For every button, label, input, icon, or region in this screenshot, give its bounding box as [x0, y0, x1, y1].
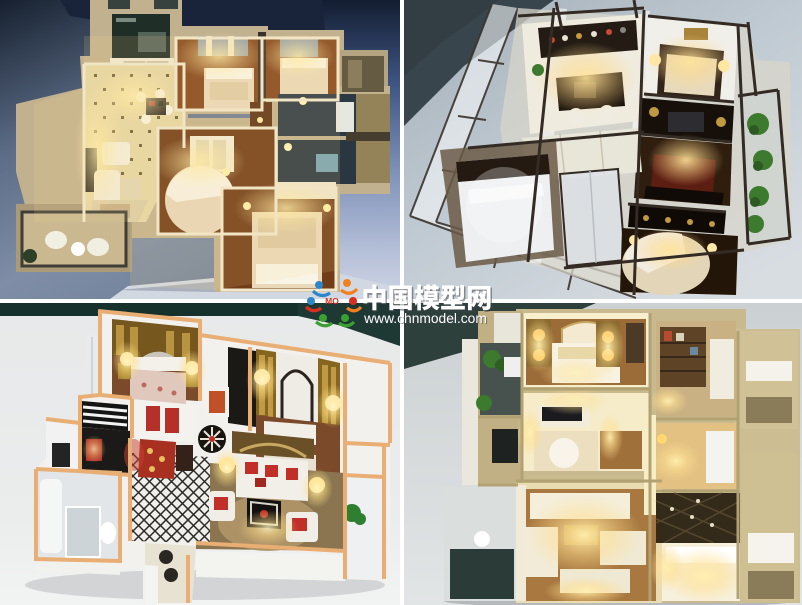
svg-text:MO: MO — [325, 296, 339, 306]
svg-text:www.chnmodel.com: www.chnmodel.com — [363, 311, 487, 326]
